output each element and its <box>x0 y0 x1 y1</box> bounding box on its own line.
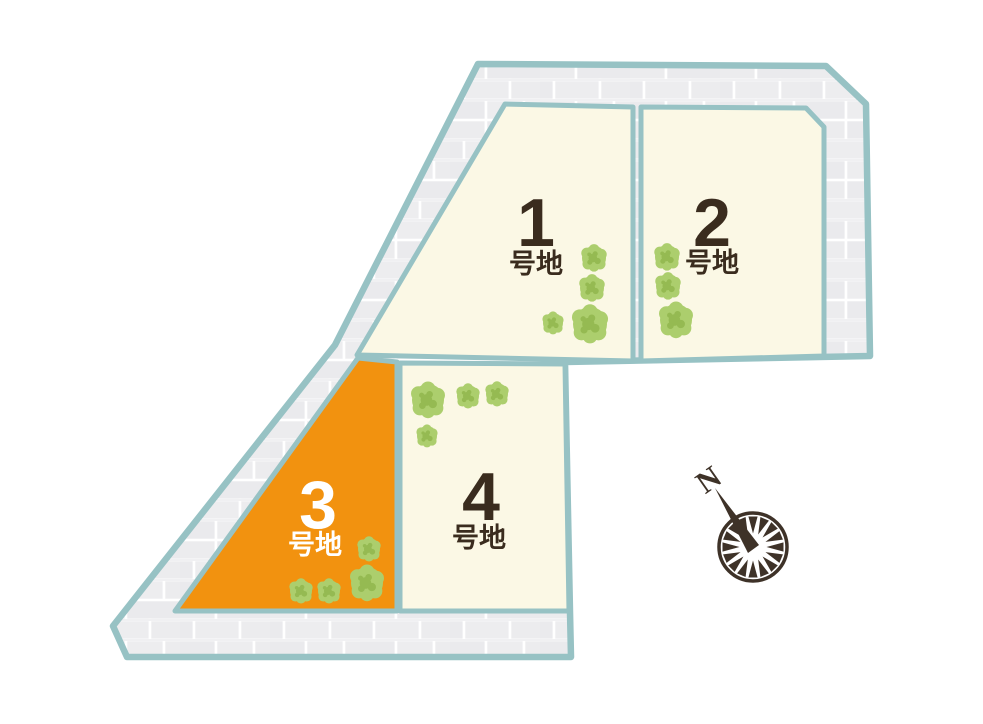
lot-1-label: 1 号地 <box>509 185 563 279</box>
lot-1-suffix: 号地 <box>509 249 563 279</box>
compass-north-label: N <box>689 459 727 501</box>
lot-2-suffix: 号地 <box>685 248 739 278</box>
compass-icon: N <box>689 459 787 581</box>
site-plan-canvas: 1 号地 2 号地 3 号地 4 号地 <box>0 0 983 724</box>
lot-4-suffix: 号地 <box>452 523 506 553</box>
lot-map-svg: 1 号地 2 号地 3 号地 4 号地 <box>0 0 983 724</box>
lot-3-suffix: 号地 <box>288 530 342 560</box>
lot-2-label: 2 号地 <box>685 185 739 278</box>
